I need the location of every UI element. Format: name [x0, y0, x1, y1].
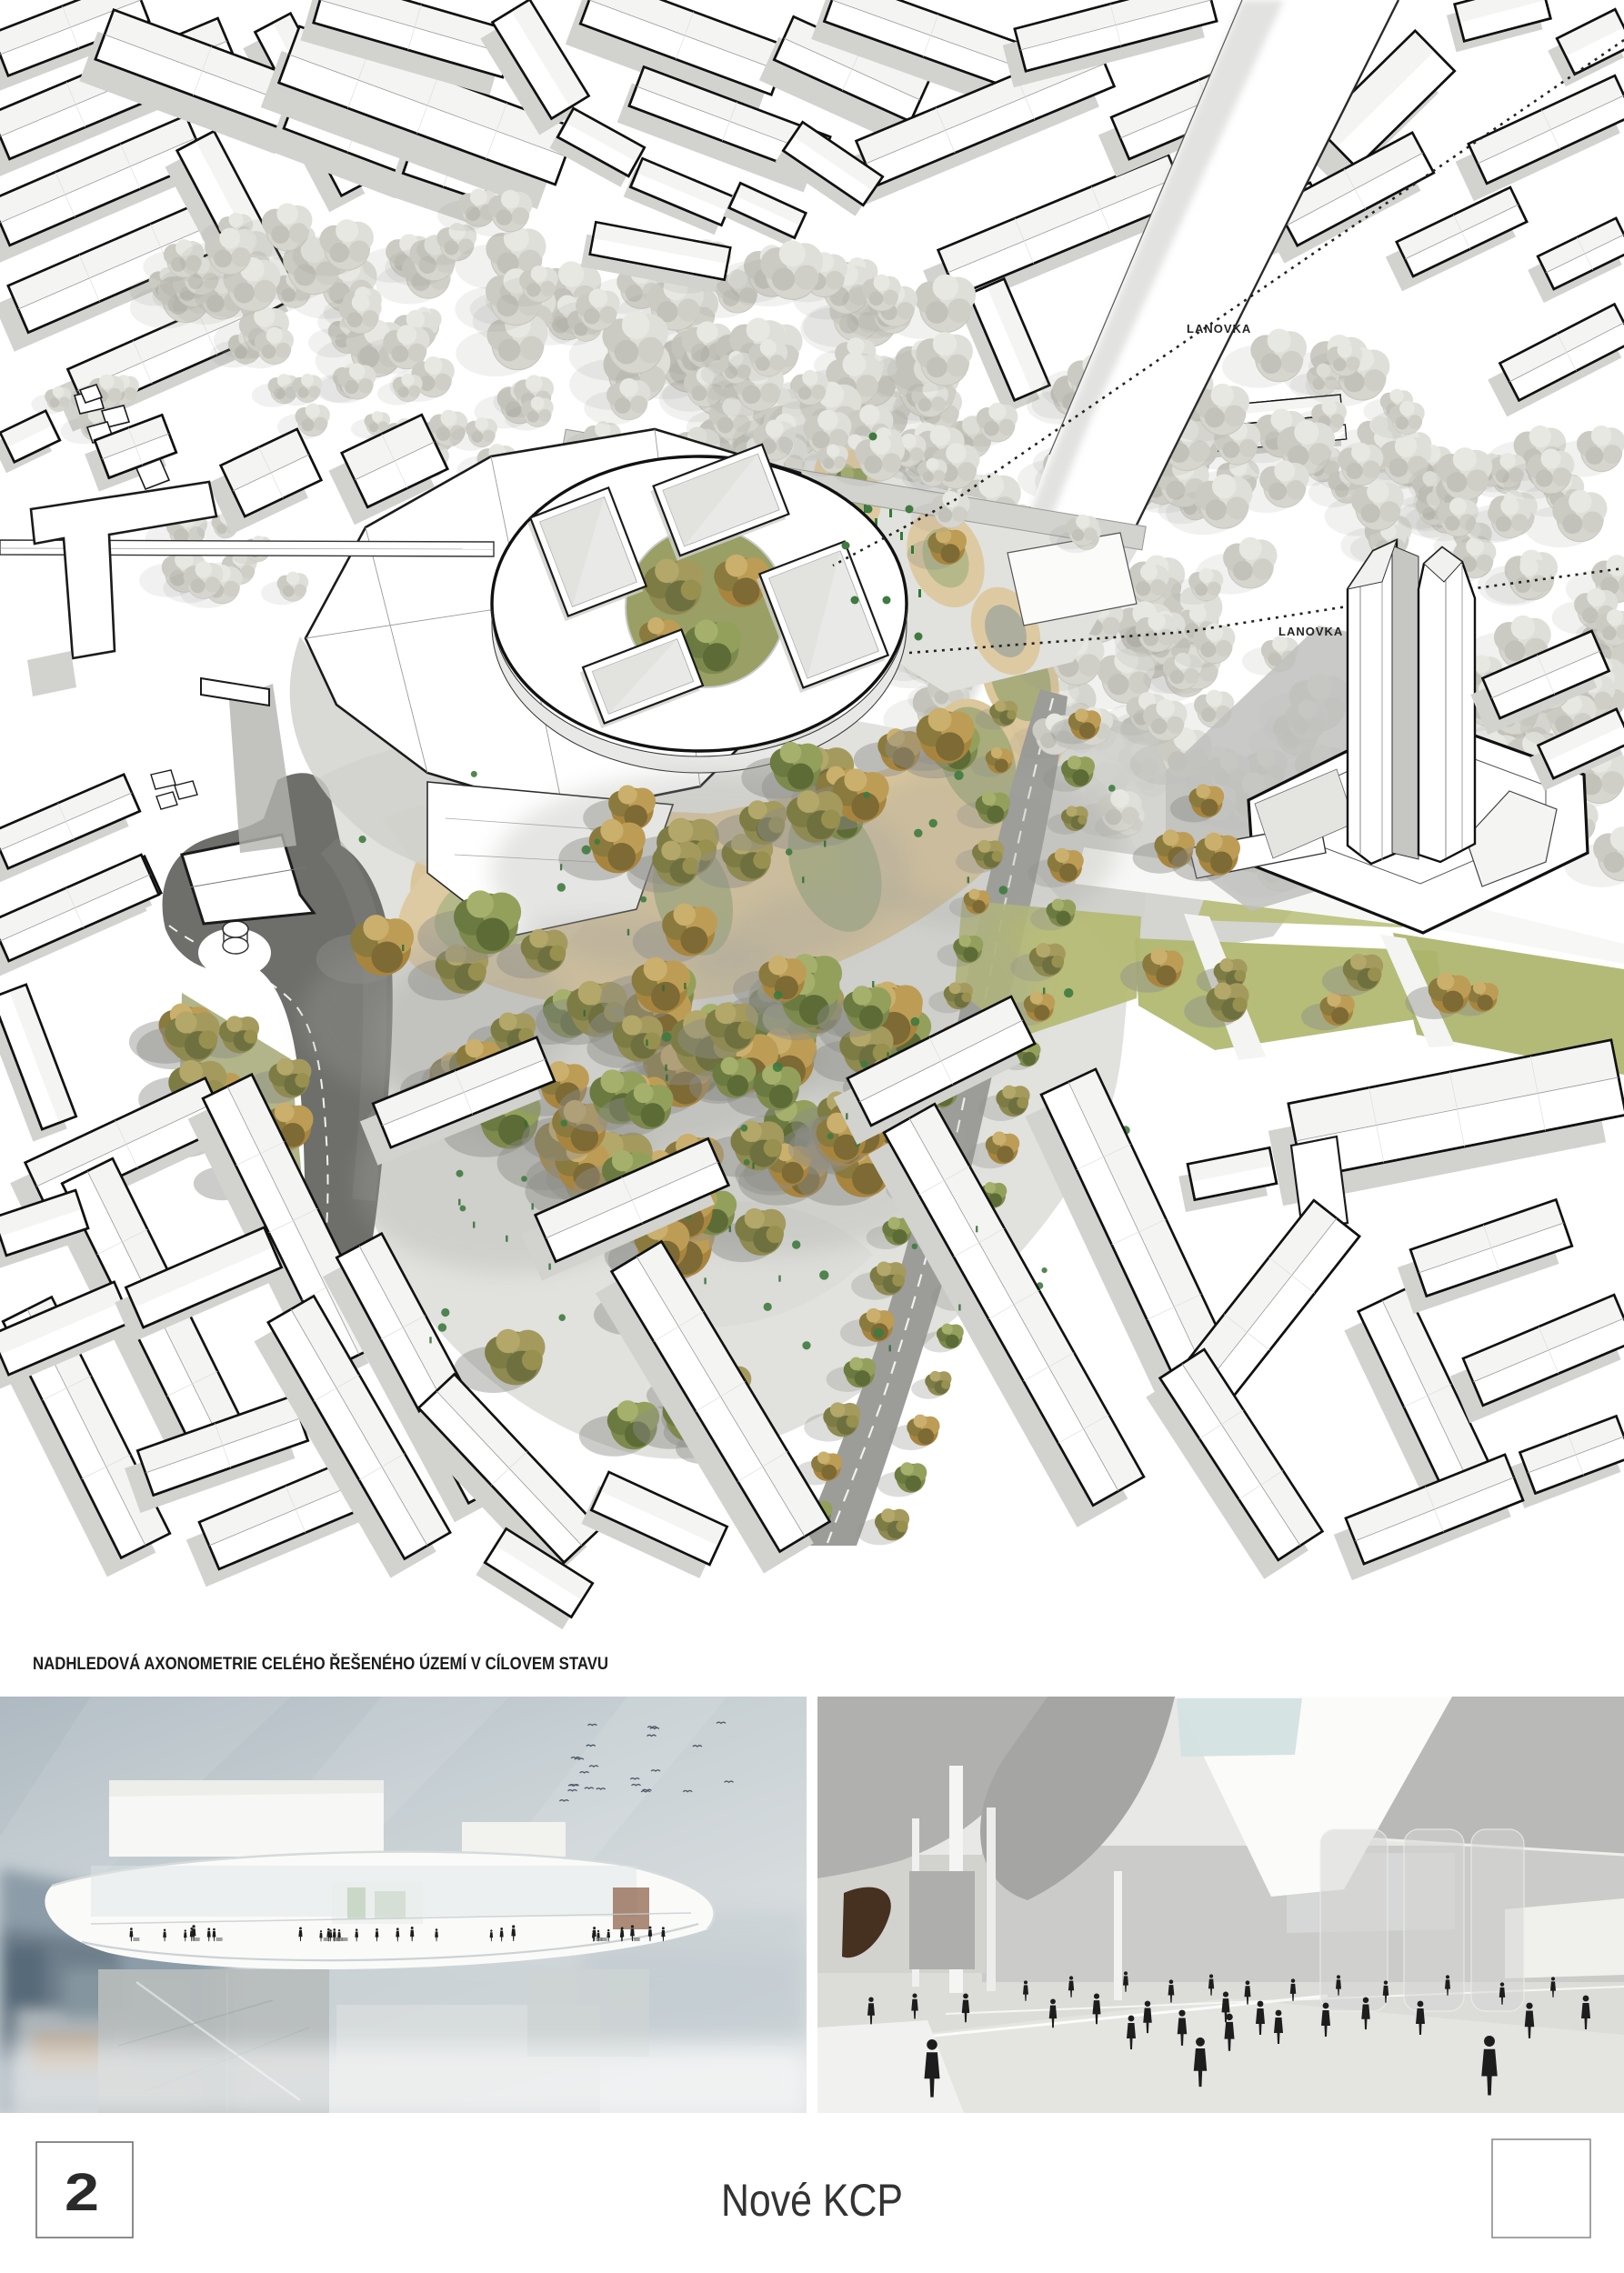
svg-text:2: 2 [65, 2163, 99, 2222]
svg-text:LANOVKA: LANOVKA [1278, 625, 1343, 638]
svg-text:NADHLEDOVÁ AXONOMETRIE CELÉHO: NADHLEDOVÁ AXONOMETRIE CELÉHO ŘEŠENÉHO Ú… [33, 1652, 608, 1674]
svg-text:Nové KCP: Nové KCP [721, 2175, 903, 2226]
svg-text:LANOVKA: LANOVKA [1187, 322, 1251, 335]
